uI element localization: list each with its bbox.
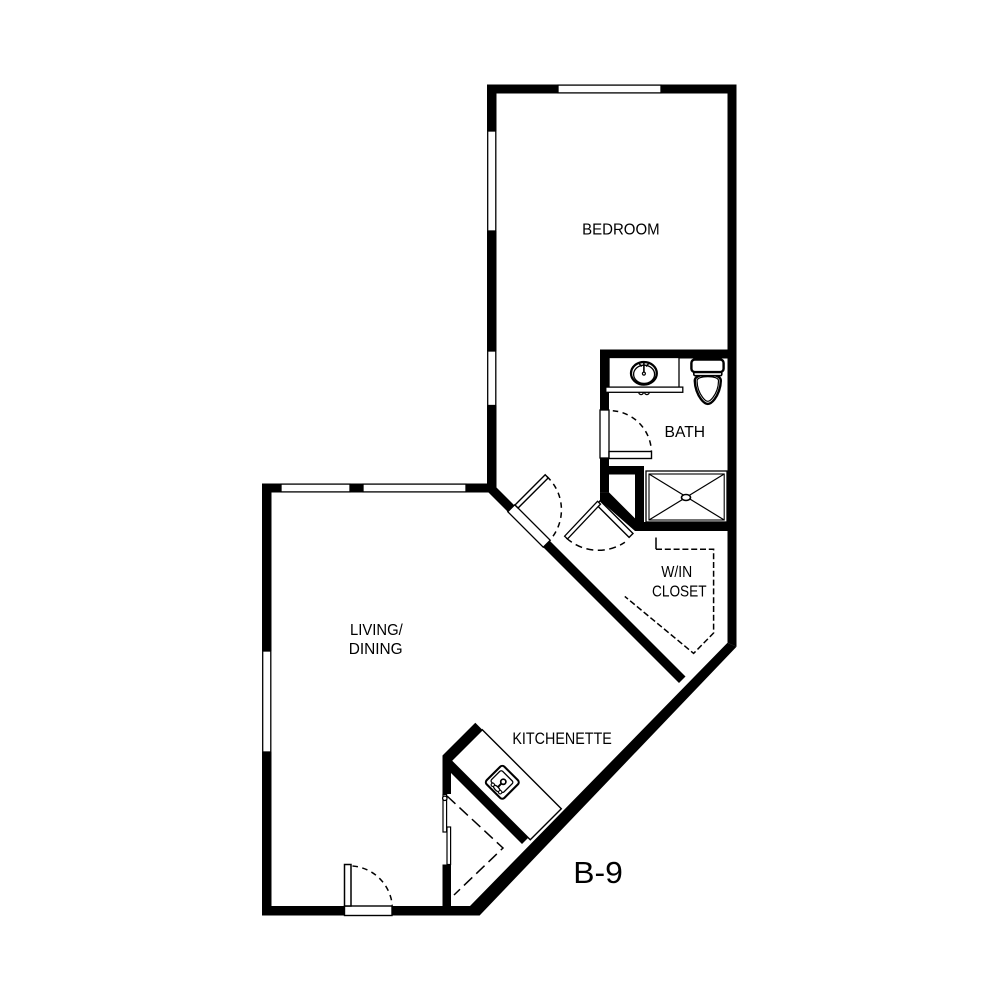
svg-text:LIVING/: LIVING/ (350, 622, 403, 639)
svg-text:CLOSET: CLOSET (652, 583, 707, 600)
svg-text:W/IN: W/IN (661, 564, 692, 581)
svg-text:KITCHENETTE: KITCHENETTE (512, 730, 611, 748)
svg-text:BATH: BATH (665, 424, 706, 441)
svg-text:DINING: DINING (349, 641, 403, 658)
svg-text:BEDROOM: BEDROOM (582, 222, 660, 239)
svg-text:B-9: B-9 (573, 855, 623, 890)
